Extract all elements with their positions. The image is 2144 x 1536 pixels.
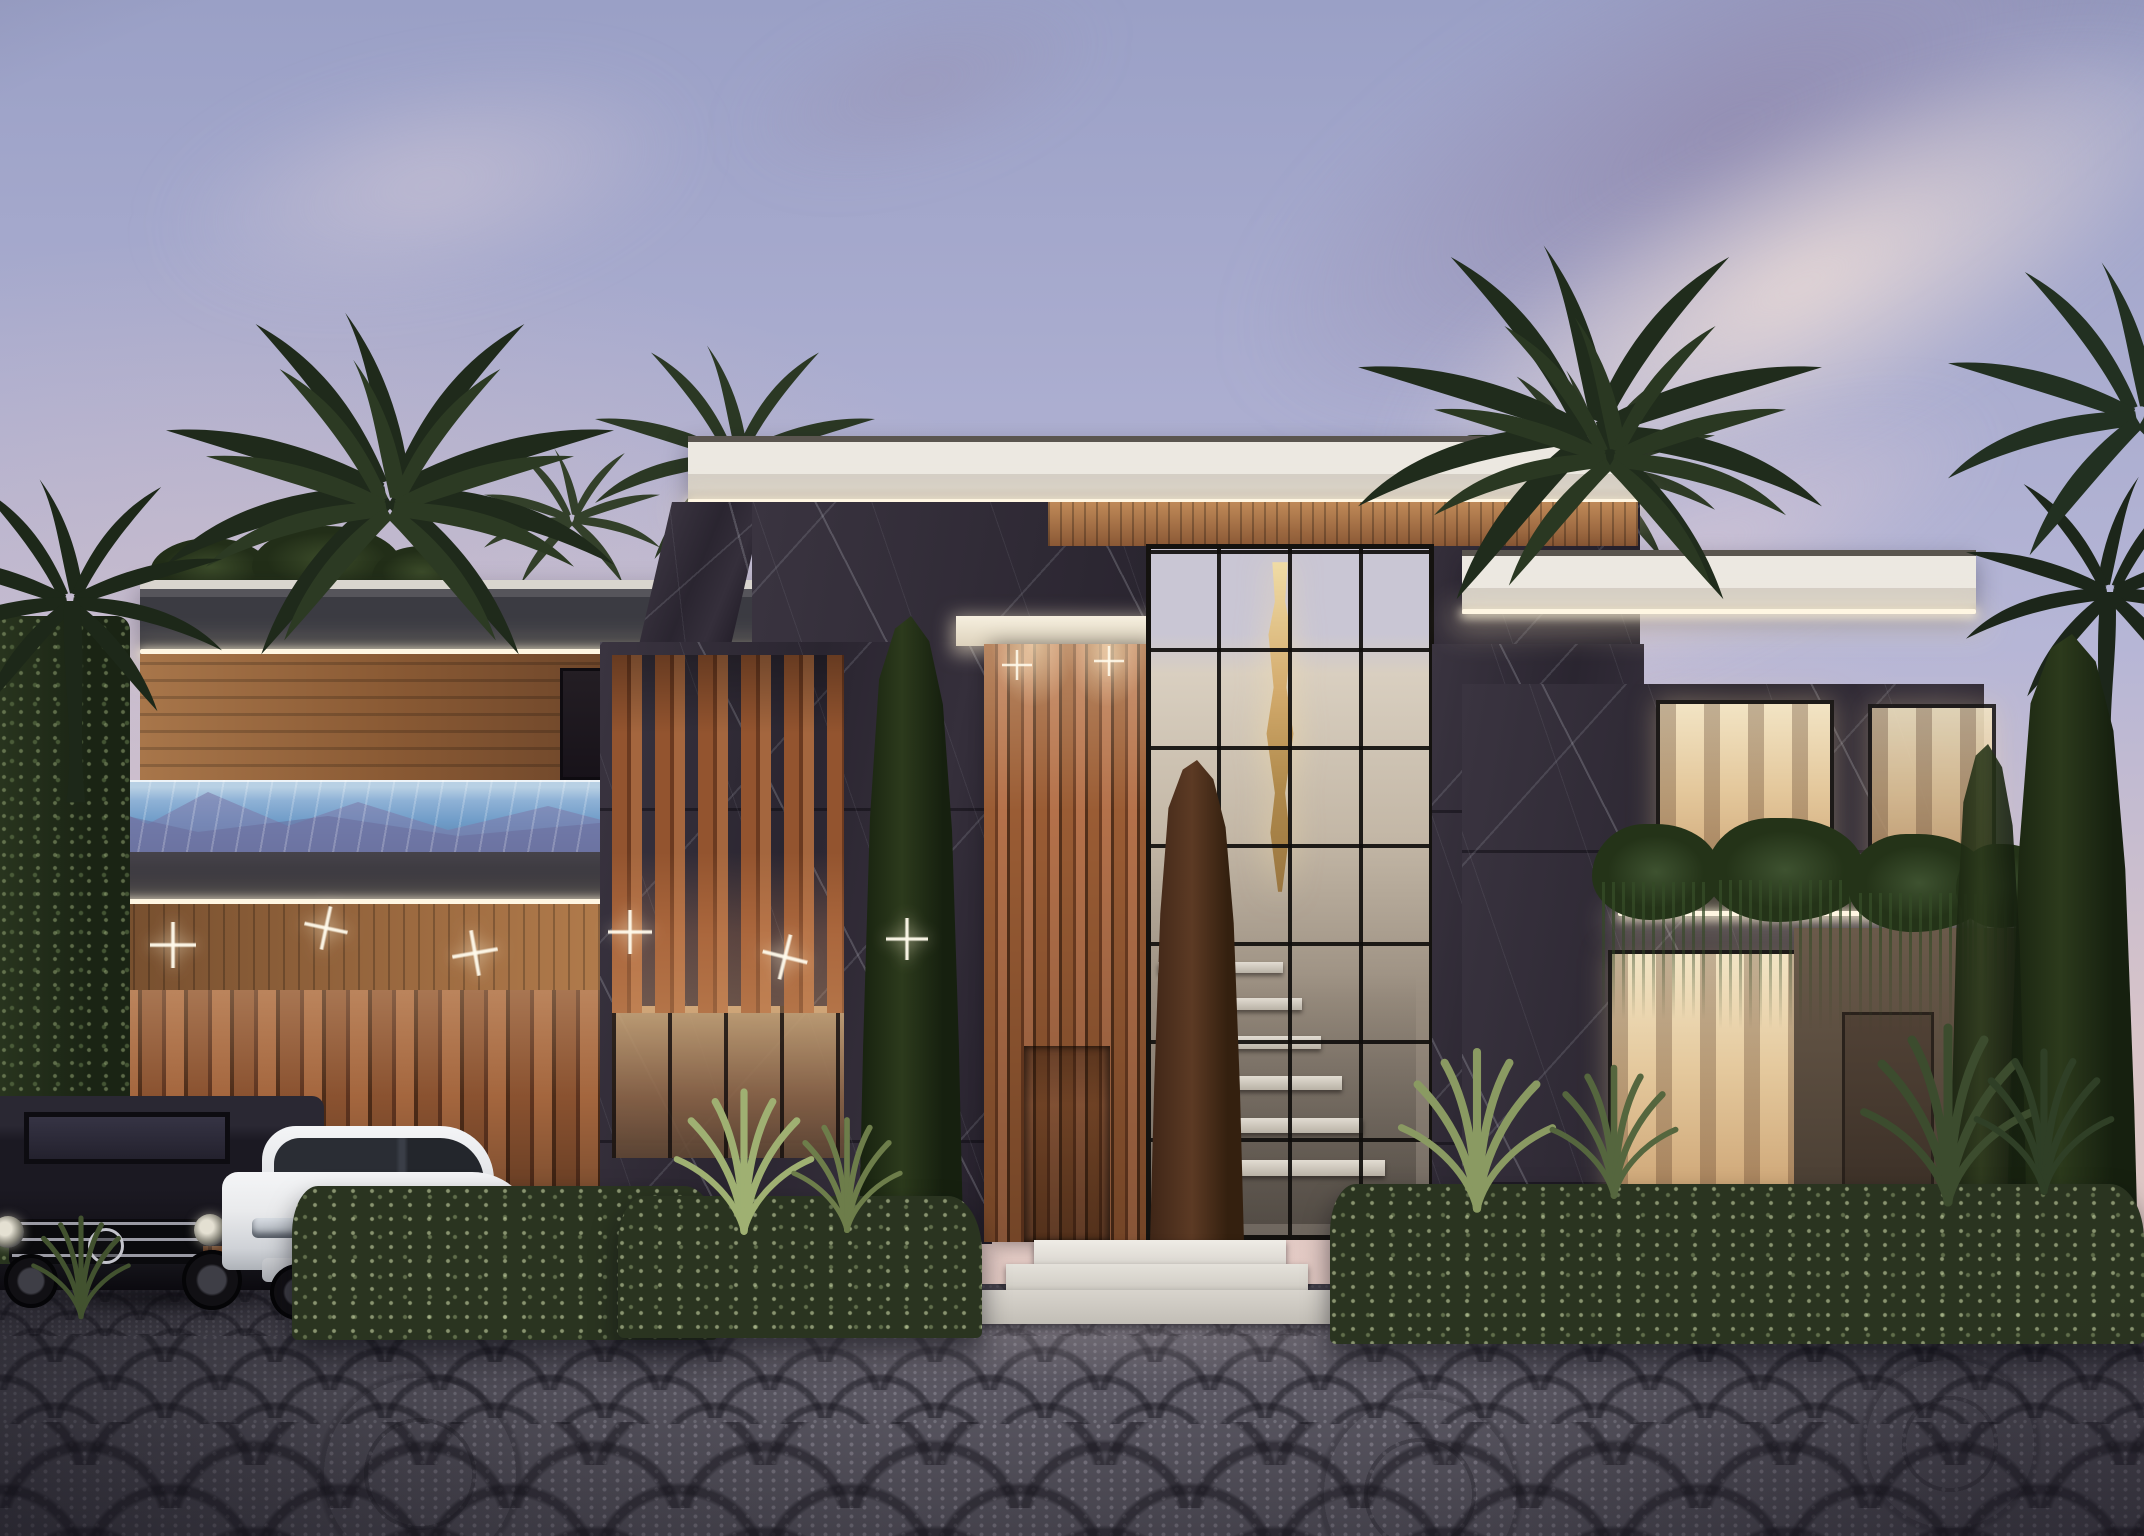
vignette-overlay bbox=[0, 0, 2144, 1536]
villa-rendering bbox=[0, 0, 2144, 1536]
